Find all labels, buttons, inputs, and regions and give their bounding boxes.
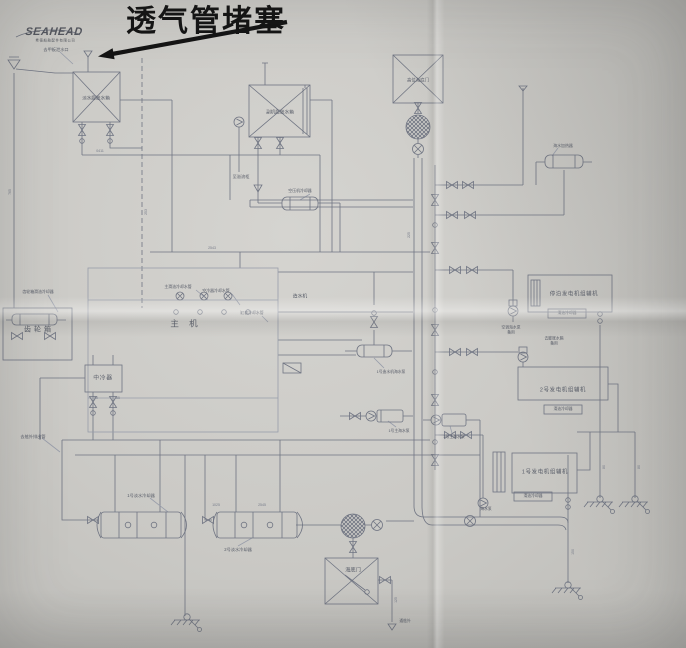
diagram-label: 225 xyxy=(407,232,411,238)
label-high-sea-chest: 高位海底门 xyxy=(407,77,429,83)
diagram-label: 1号造水机海水泵 xyxy=(377,370,406,375)
diagram-label: 滑油冷却器 xyxy=(553,407,572,412)
diagram-label: 2543 xyxy=(208,246,216,250)
label-expansion-tank-2: 副机膨胀水箱 xyxy=(266,109,294,115)
diagram-label: 海水泵 xyxy=(480,507,491,512)
diagram-label: 125 xyxy=(394,597,398,603)
logo-subtext: 希德船舶配件有限公司 xyxy=(36,38,73,43)
diagram-label: 80 xyxy=(637,465,641,469)
diagram-label: 去膨胀水箱 备用 xyxy=(544,336,563,346)
label-genset-1: 1号发电机组辅机 xyxy=(522,469,568,476)
diagram-label: 齿轮箱滑油冷却器 xyxy=(22,290,53,295)
diagram-label: 253 xyxy=(144,209,148,215)
diagram-label: 1号主海水泵 xyxy=(388,429,409,434)
seahead-logo: SEAHEAD 希德船舶配件有限公司 xyxy=(10,26,98,49)
label-fw-generator: 造水机 xyxy=(293,293,307,299)
label-cooler-2: 2号淡水冷却器 xyxy=(224,547,252,552)
diagram-label: 滑油冷却器 xyxy=(557,311,576,316)
label-main-engine: 主 机 xyxy=(170,319,201,330)
label-expansion-tank-1: 淡水膨胀水箱 xyxy=(82,95,110,101)
diagram-label: 150 xyxy=(571,549,575,555)
diagram-label: 40 xyxy=(94,396,98,400)
diagram-label: 空调海水泵 备用 xyxy=(501,325,520,335)
diagram-label: 65 xyxy=(116,396,120,400)
diagram-label: 滑油冷却器 xyxy=(523,494,542,499)
label-sea-chest: 海底门 xyxy=(345,567,361,574)
diagram-label: 海水加热器 xyxy=(553,144,573,149)
logo-text: SEAHEAD xyxy=(9,26,98,38)
diagram-label: 空压机冷却器 xyxy=(288,189,311,194)
label-gearbox: 齿轮箱 xyxy=(24,327,54,336)
diagram-label: 765 xyxy=(8,189,12,195)
label-intercooler: 中冷器 xyxy=(93,374,113,381)
label-genset-2: 2号发电机组辅机 xyxy=(540,387,586,394)
photographed-piping-diagram: SEAHEAD 希德船舶配件有限公司 透气管堵塞 去甲板泄水口淡水膨胀水箱副机膨… xyxy=(0,0,686,648)
label-cooler-1: 1号淡水冷却器 xyxy=(127,493,155,498)
diagram-label: 通舷外 xyxy=(399,619,410,624)
diagram-label: 至溢流柜 xyxy=(233,174,250,179)
diagram-label: 主滑油冷却水管 xyxy=(164,285,191,290)
diagram-label: 80 xyxy=(602,465,606,469)
label-harbor-genset: 停泊发电机组辅机 xyxy=(550,291,599,298)
handwritten-annotation: 透气管堵塞 xyxy=(126,0,286,40)
diagram-label: 0411 xyxy=(96,149,104,153)
diagram-label: 缸套冷却水管 xyxy=(240,311,263,316)
diagram-label: 去舷外排出管 xyxy=(20,434,45,439)
diagram-label: 2545 xyxy=(258,503,266,507)
diagram-label: 1025 xyxy=(212,503,220,507)
diagram-label: 空冷器冷却水管 xyxy=(202,289,229,294)
diagram-labels-layer: 去甲板泄水口淡水膨胀水箱副机膨胀水箱至溢流柜高位海底门海底门齿轮箱主 机中冷器造… xyxy=(0,0,686,648)
diagram-label: 2号主海水泵 xyxy=(443,435,464,440)
